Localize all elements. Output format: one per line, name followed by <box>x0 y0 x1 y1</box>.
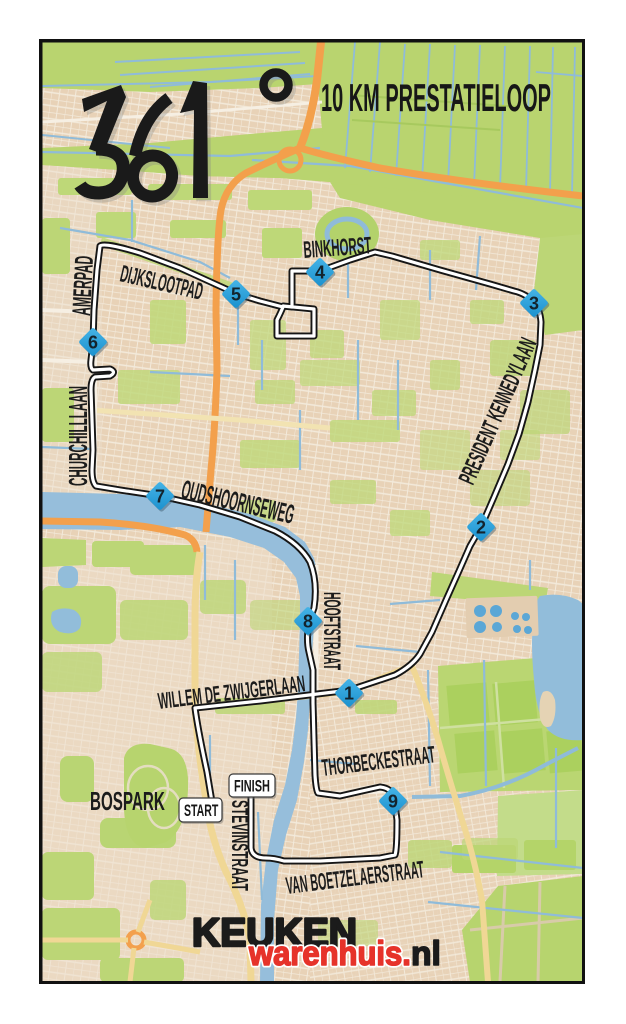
svg-text:6: 6 <box>88 333 98 353</box>
svg-text:7: 7 <box>155 487 165 507</box>
svg-text:1: 1 <box>344 684 354 704</box>
svg-text:3: 3 <box>529 294 539 314</box>
svg-text:warenhuis.: warenhuis. <box>248 935 411 973</box>
svg-text:10 KM PRESTATIELOOP: 10 KM PRESTATIELOOP <box>321 76 551 120</box>
svg-text:9: 9 <box>388 792 398 812</box>
svg-text:BINKHORST: BINKHORST <box>302 232 372 264</box>
svg-text:5: 5 <box>231 285 241 305</box>
svg-text:AMERPAD: AMERPAD <box>68 255 99 316</box>
svg-text:CHURCHILLLAAN: CHURCHILLLAAN <box>65 386 93 486</box>
svg-text:BOSPARK: BOSPARK <box>90 787 165 816</box>
svg-text:STEVINSTRAAT: STEVINSTRAAT <box>227 800 253 891</box>
svg-text:HOOFTSTRAAT: HOOFTSTRAAT <box>319 592 346 670</box>
svg-text:4: 4 <box>315 263 325 283</box>
svg-text:8: 8 <box>303 612 313 632</box>
svg-text:FINISH: FINISH <box>234 777 270 796</box>
svg-text:START: START <box>184 800 219 819</box>
svg-text:nl: nl <box>411 935 441 973</box>
svg-text:2: 2 <box>476 518 486 538</box>
